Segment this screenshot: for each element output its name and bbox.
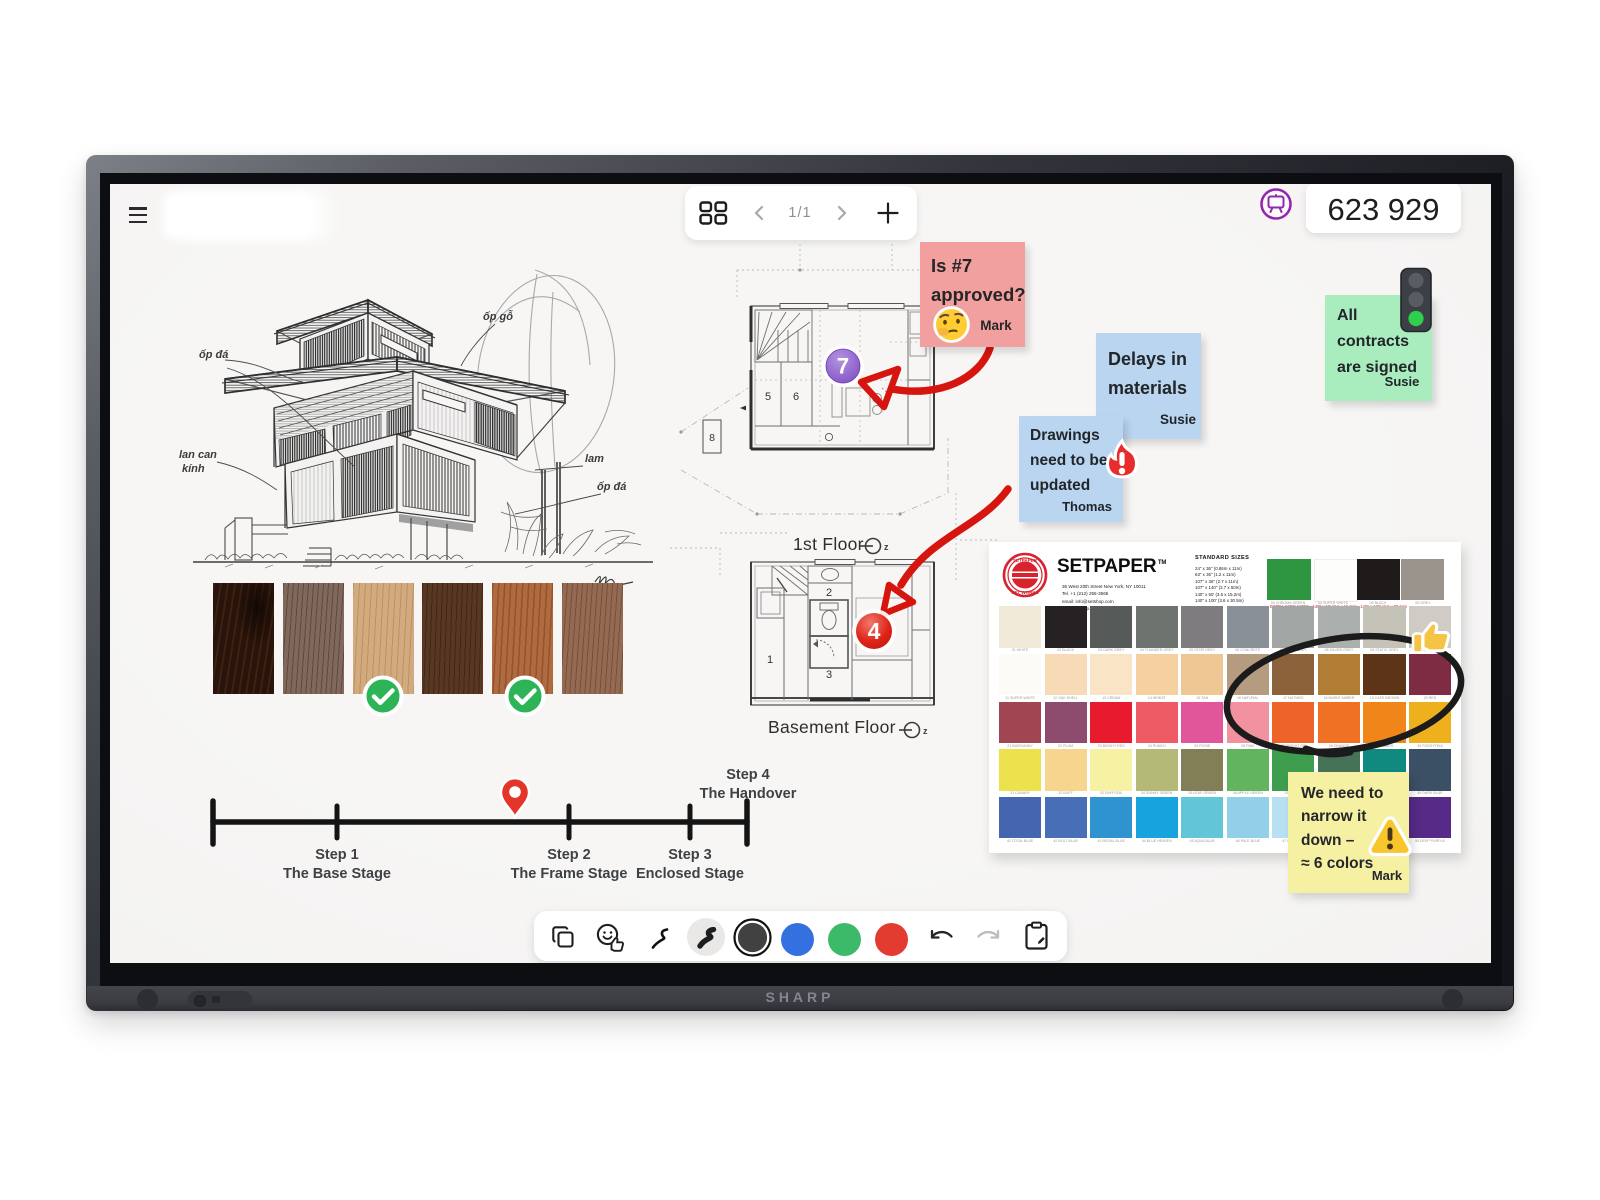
svg-text:2: 2 [826,587,832,599]
svg-text:5: 5 [765,391,771,403]
svg-text:lan can: lan can [179,449,217,461]
svg-text:lam: lam [585,453,604,465]
svg-text:3: 3 [826,669,832,681]
svg-text:ốp đá: ốp đá [597,481,626,493]
svg-text:ốp gỗ: ốp gỗ [483,310,513,323]
svg-text:kính: kính [182,463,205,475]
svg-text:7: 7 [837,354,849,379]
svg-text:1: 1 [767,654,773,666]
svg-text:ốp đá: ốp đá [199,349,228,361]
svg-text:6: 6 [793,391,799,403]
svg-text:8: 8 [709,432,715,444]
svg-text:SETPAPER: SETPAPER [1013,558,1038,563]
svg-text:4: 4 [868,618,881,644]
svg-text:SET WORKS: SET WORKS [1011,590,1038,595]
